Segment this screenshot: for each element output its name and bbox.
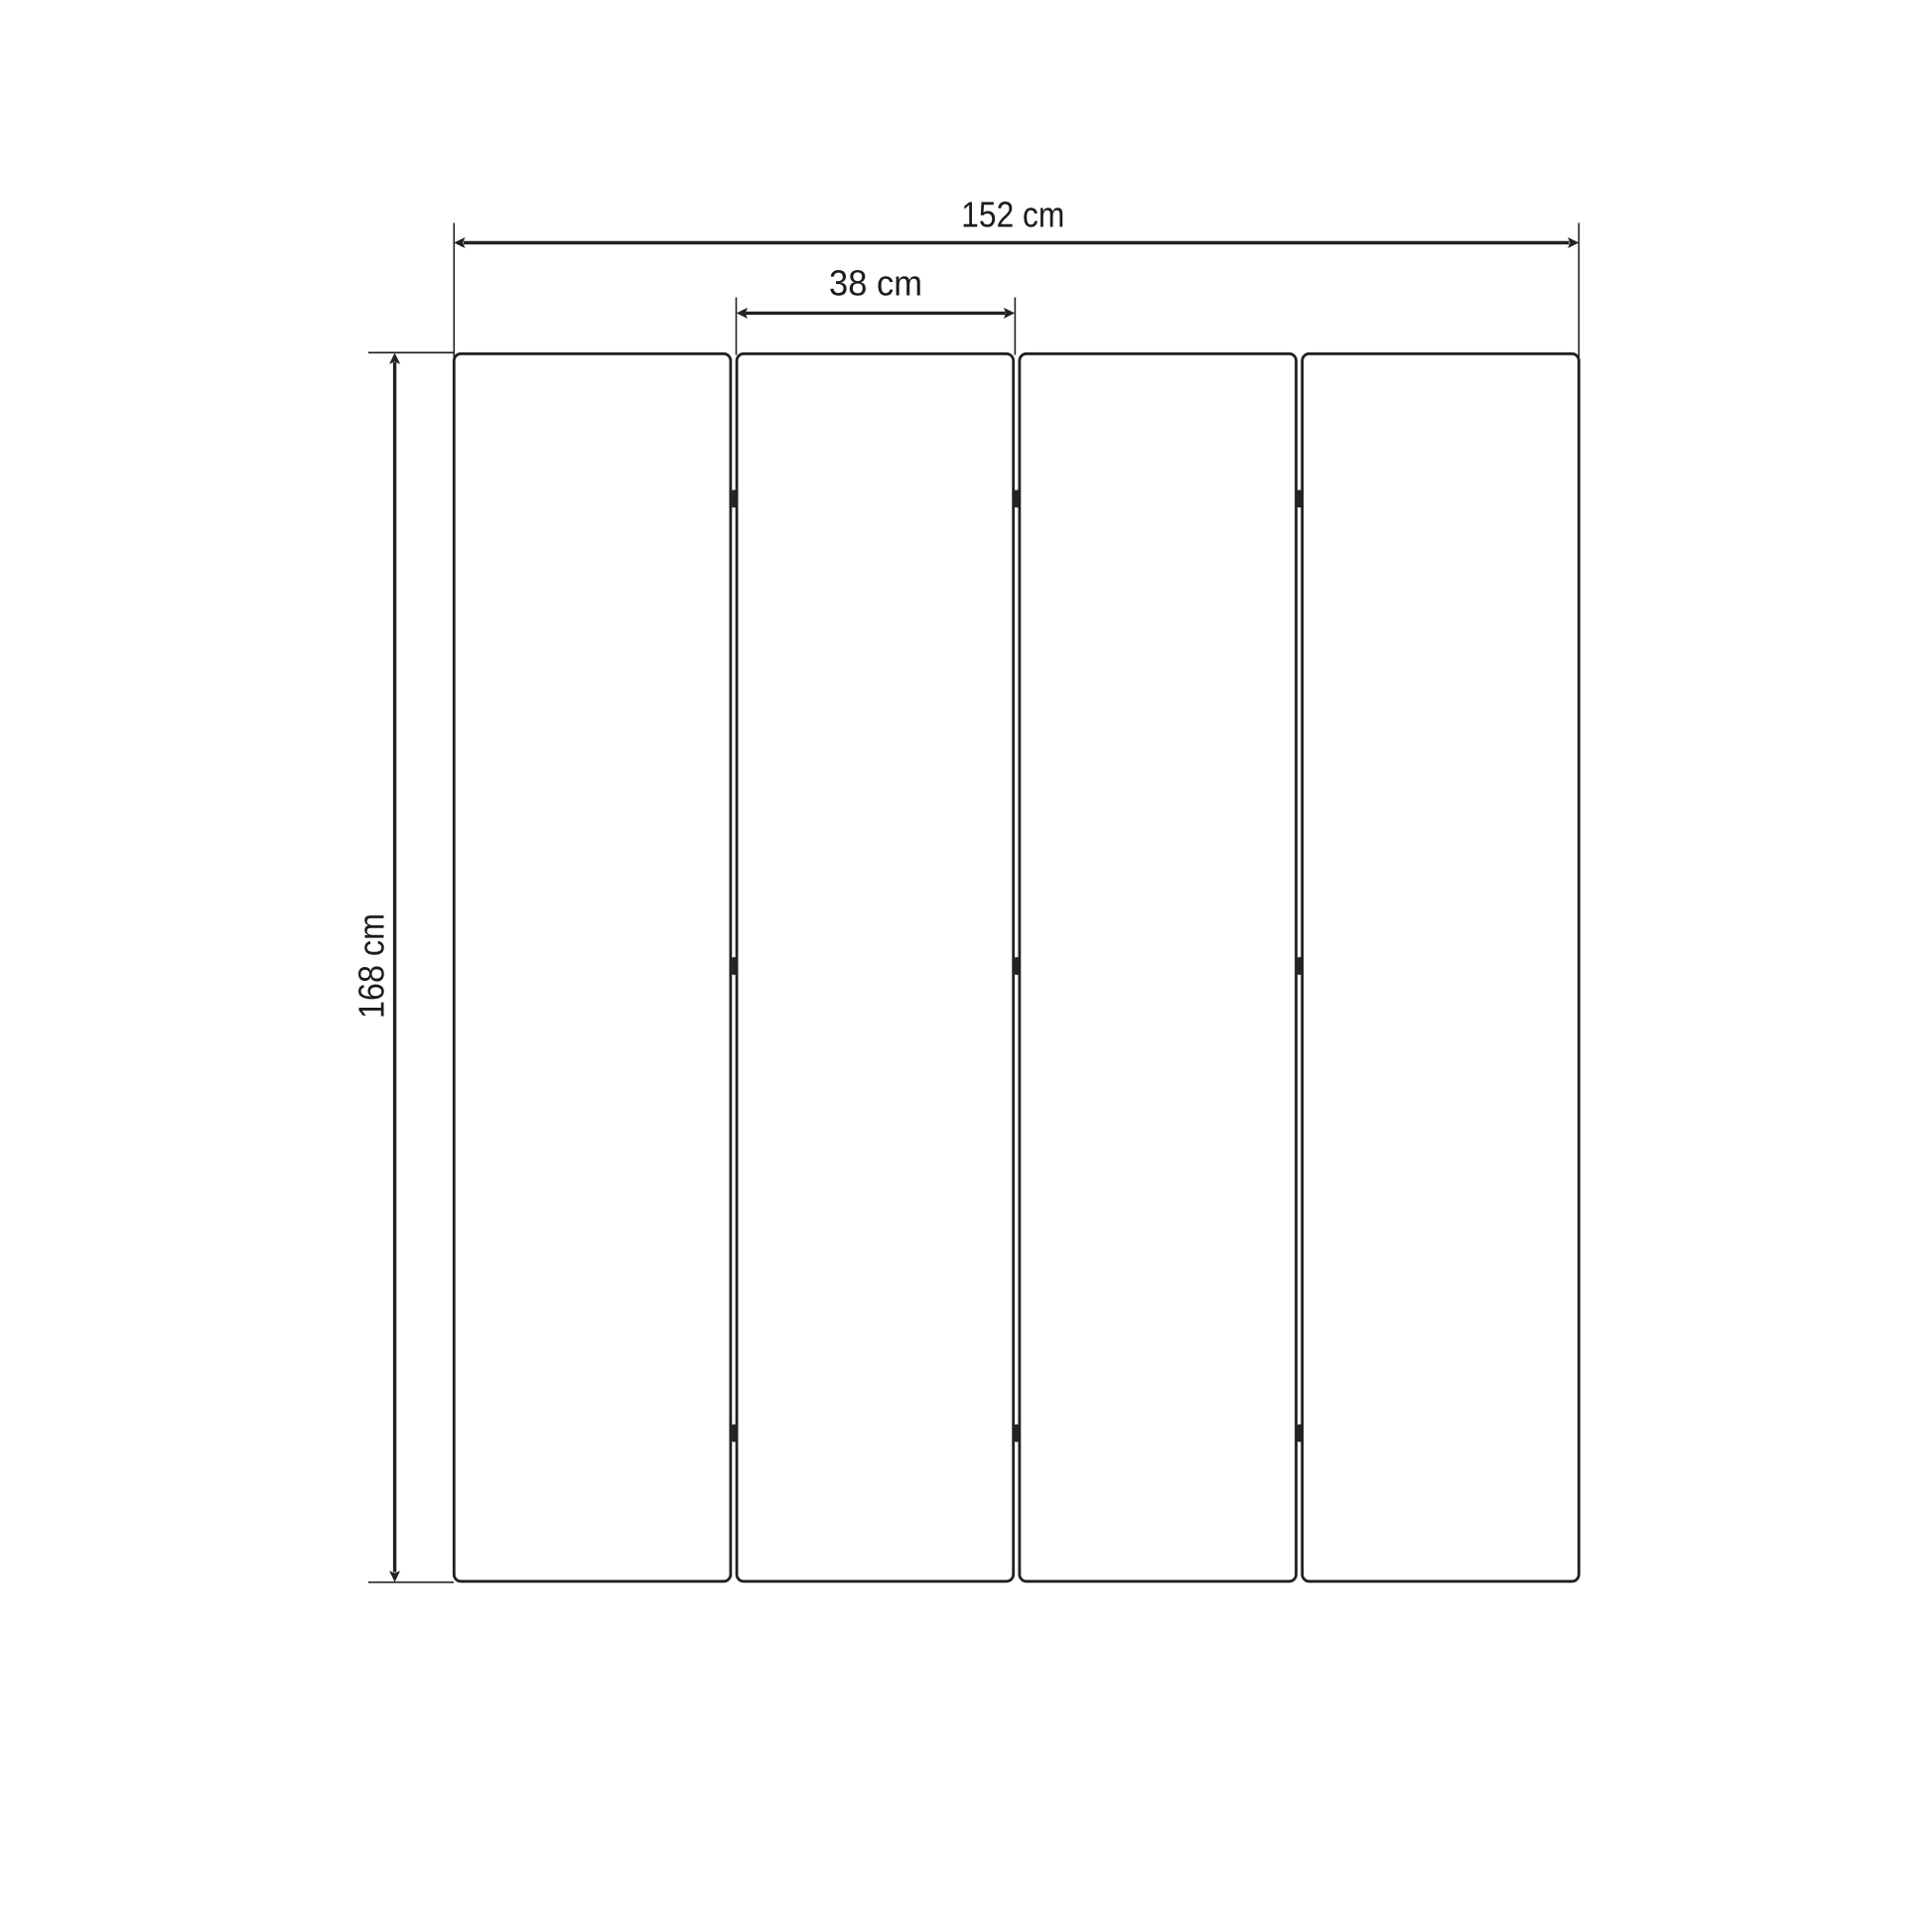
svg-text:38 cm: 38 cm (829, 263, 922, 304)
svg-text:152 cm: 152 cm (961, 195, 1064, 235)
svg-text:168 cm: 168 cm (350, 913, 391, 1019)
